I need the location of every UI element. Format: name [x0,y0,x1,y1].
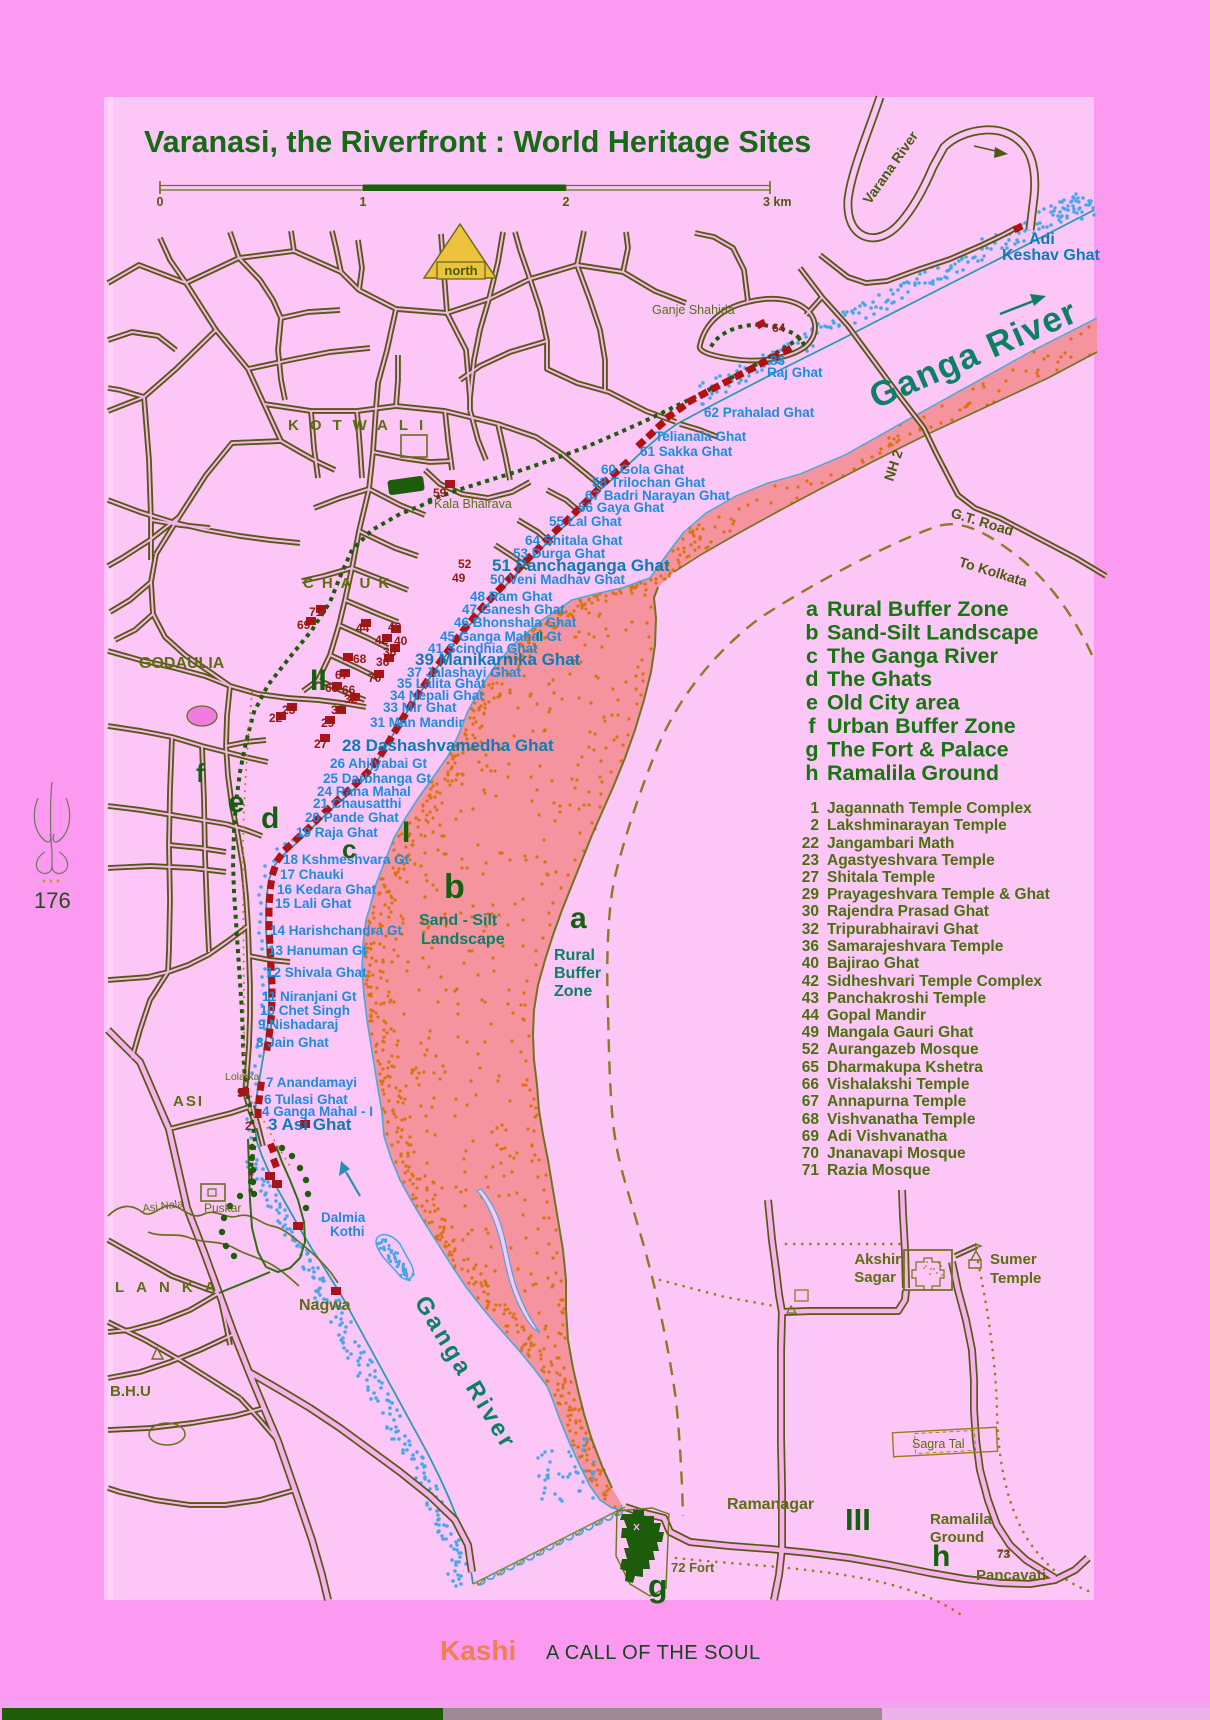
svg-text:32: 32 [802,921,819,938]
svg-text:Sagar: Sagar [854,1269,896,1286]
svg-text:north: north [444,263,477,278]
svg-text:The Ghats: The Ghats [827,667,932,691]
svg-text:69: 69 [802,1128,820,1145]
svg-text:68: 68 [802,1111,820,1128]
svg-text:70: 70 [802,1145,819,1162]
svg-text:36: 36 [376,655,390,669]
svg-text:Mangala Gauri Ghat: Mangala Gauri Ghat [827,1024,973,1041]
svg-text:Vishalakshi Temple: Vishalakshi Temple [827,1076,970,1093]
svg-text:Keshav Ghat: Keshav Ghat [1002,247,1100,264]
svg-text:Varanasi, the Riverfront : Wor: Varanasi, the Riverfront : World Heritag… [144,125,811,159]
svg-text:CHAUK: CHAUK [303,575,397,592]
svg-text:19 Raja Ghat: 19 Raja Ghat [296,825,378,840]
svg-text:64: 64 [772,321,786,335]
svg-text:II: II [310,664,327,697]
svg-text:46 Bhonshala Ghat: 46 Bhonshala Ghat [454,615,577,630]
svg-text:c: c [806,644,818,668]
svg-text:Adi: Adi [1029,231,1055,248]
svg-text:2: 2 [563,195,570,209]
svg-text:65: 65 [325,681,339,695]
svg-text:36: 36 [802,938,820,955]
svg-text:Akshir: Akshir [854,1251,901,1268]
svg-text:31 Man Mandir: 31 Man Mandir [370,715,465,730]
svg-text:22: 22 [269,711,283,725]
svg-text:23: 23 [282,703,296,717]
svg-text:The Ganga River: The Ganga River [827,644,998,668]
svg-text:52: 52 [458,557,472,571]
svg-text:Pancavati: Pancavati [976,1567,1046,1584]
svg-text:83: 83 [770,353,786,368]
svg-text:44: 44 [356,621,370,635]
svg-text:10 Chet Singh: 10 Chet Singh [260,1003,350,1018]
svg-text:67: 67 [335,668,349,682]
svg-text:GODAULIA: GODAULIA [139,655,225,672]
svg-text:33 Mir Ghat: 33 Mir Ghat [383,700,457,715]
svg-text:9 Nishadaraj: 9 Nishadaraj [258,1017,338,1032]
svg-text:Buffer: Buffer [554,965,601,982]
svg-text:27: 27 [802,869,819,886]
svg-text:0: 0 [157,195,164,209]
svg-text:Gopal Mandir: Gopal Mandir [827,1007,926,1024]
svg-text:72 Fort: 72 Fort [671,1560,715,1575]
svg-text:Kala Bhairava: Kala Bhairava [434,497,512,511]
svg-text:h: h [932,1540,950,1573]
svg-text:12 Shivala Ghat: 12 Shivala Ghat [266,965,367,980]
svg-text:LANKA: LANKA [115,1279,228,1296]
svg-text:30: 30 [331,703,345,717]
svg-text:Jnanavapi Mosque: Jnanavapi Mosque [827,1145,966,1162]
svg-text:62 Prahalad Ghat: 62 Prahalad Ghat [704,405,815,420]
svg-text:KOTWALI: KOTWALI [288,417,434,434]
svg-text:Kashi: Kashi [440,1635,516,1666]
svg-text:55 Lal Ghat: 55 Lal Ghat [549,514,622,529]
svg-text:27: 27 [314,737,328,751]
svg-text:Old City area: Old City area [827,691,961,715]
svg-text:40: 40 [802,955,819,972]
svg-text:Dharmakupa Kshetra: Dharmakupa Kshetra [827,1059,983,1076]
svg-text:Annapurna Temple: Annapurna Temple [827,1093,967,1110]
svg-text:32: 32 [344,692,358,706]
svg-text:Sand - Silt: Sand - Silt [419,912,498,929]
svg-text:Sumer: Sumer [990,1251,1037,1268]
svg-text:67: 67 [802,1093,819,1110]
svg-text:b: b [444,868,465,906]
svg-text:69: 69 [297,618,311,632]
svg-text:Samarajeshvara Temple: Samarajeshvara Temple [827,938,1004,955]
svg-text:71: 71 [802,1162,820,1179]
svg-text:Nagwa: Nagwa [299,1297,351,1314]
svg-text:29: 29 [802,886,820,903]
svg-text:44: 44 [802,1007,820,1024]
svg-text:43: 43 [802,990,820,1007]
svg-text:Ramanagar: Ramanagar [727,1496,814,1513]
svg-text:30: 30 [802,903,819,920]
svg-text:13 Hanuman Gt: 13 Hanuman Gt [268,943,368,958]
svg-text:g: g [805,737,818,761]
svg-text:b: b [805,620,818,644]
svg-text:Sagra Tal: Sagra Tal [912,1437,965,1451]
svg-text:g: g [648,1568,668,1604]
svg-text:22: 22 [802,835,819,852]
svg-text:Sand-Silt Landscape: Sand-Silt Landscape [827,620,1039,644]
svg-text:1: 1 [810,800,819,817]
svg-text:17 Chauki: 17 Chauki [280,867,344,882]
svg-text:Sidheshvari Temple Complex: Sidheshvari Temple Complex [827,973,1042,990]
svg-text:Ganje Shahida: Ganje Shahida [652,303,735,317]
svg-text:h: h [805,761,818,785]
svg-text:2: 2 [810,817,819,834]
svg-text:8 Jain Ghat: 8 Jain Ghat [256,1035,329,1050]
svg-text:e: e [806,691,818,715]
svg-text:71: 71 [309,605,323,619]
svg-text:Landscape: Landscape [421,931,505,948]
svg-text:Temple: Temple [990,1270,1041,1287]
svg-text:1: 1 [248,1169,255,1183]
svg-text:ASI: ASI [173,1093,204,1110]
svg-text:1: 1 [360,195,367,209]
svg-text:III: III [845,1502,871,1537]
svg-text:Agastyeshvara Temple: Agastyeshvara Temple [827,852,995,869]
svg-text:Zone: Zone [554,983,592,1000]
svg-text:Rural: Rural [554,947,595,964]
svg-text:14 Harishchandra Gt: 14 Harishchandra Gt [270,923,403,938]
svg-text:e: e [228,786,245,819]
svg-text:Telianala Ghat: Telianala Ghat [655,429,747,444]
svg-text:I: I [402,816,410,849]
svg-text:Razia Mosque: Razia Mosque [827,1162,931,1179]
svg-text:43: 43 [388,620,402,634]
svg-text:28 Dashashvamedha Ghat: 28 Dashashvamedha Ghat [342,736,554,755]
svg-text:Rajendra Prasad Ghat: Rajendra Prasad Ghat [827,903,989,920]
svg-text:65: 65 [802,1059,820,1076]
svg-text:d: d [261,802,279,835]
svg-text:16 Kedara Ghat: 16 Kedara Ghat [277,882,377,897]
svg-text:3 km: 3 km [763,195,792,209]
svg-text:61 Sakka Ghat: 61 Sakka Ghat [640,444,733,459]
svg-text:66: 66 [802,1076,820,1093]
svg-text:c: c [342,834,356,864]
svg-text:Kothi: Kothi [330,1224,365,1239]
svg-text:73: 73 [997,1549,1009,1561]
svg-text:a: a [570,902,587,935]
svg-text:50 Veni Madhav Ghat: 50 Veni Madhav Ghat [490,572,626,587]
svg-text:23: 23 [802,852,820,869]
svg-text:II: II [536,629,543,644]
svg-text:15 Lali Ghat: 15 Lali Ghat [275,896,352,911]
svg-text:Rural Buffer Zone: Rural Buffer Zone [827,597,1009,621]
svg-text:B.H.U: B.H.U [110,1383,151,1400]
svg-text:5: 5 [237,1086,244,1100]
svg-text:Urban Buffer Zone: Urban Buffer Zone [827,714,1016,738]
svg-text:Bajirao Ghat: Bajirao Ghat [827,955,919,972]
svg-text:Panchakroshi Temple: Panchakroshi Temple [827,990,986,1007]
svg-text:11 Niranjani Gt: 11 Niranjani Gt [262,989,357,1004]
svg-text:70: 70 [368,671,382,685]
svg-text:29: 29 [321,716,335,730]
svg-text:49: 49 [802,1024,820,1041]
svg-text:3 Asi Ghat: 3 Asi Ghat [268,1115,352,1134]
svg-text:2: 2 [245,1119,252,1133]
svg-text:Ramalila Ground: Ramalila Ground [827,761,999,785]
svg-text:56 Gaya Ghat: 56 Gaya Ghat [578,500,665,515]
svg-text:A CALL OF THE SOUL: A CALL OF THE SOUL [546,1642,761,1664]
svg-text:a: a [806,597,819,621]
svg-text:Lakshminarayan Temple: Lakshminarayan Temple [827,817,1007,834]
svg-text:Ramalila: Ramalila [930,1511,992,1528]
svg-text:d: d [805,667,818,691]
svg-text:Dalmia: Dalmia [321,1210,366,1225]
svg-text:Aurangazeb Mosque: Aurangazeb Mosque [827,1041,979,1058]
svg-text:7 Anandamayi: 7 Anandamayi [266,1075,357,1090]
svg-text:f: f [808,714,816,738]
svg-text:The Fort & Palace: The Fort & Palace [827,737,1009,761]
svg-text:Puskar: Puskar [204,1201,241,1215]
svg-text:Jangambari Math: Jangambari Math [827,835,954,852]
svg-text:Prayageshvara Temple & Ghat: Prayageshvara Temple & Ghat [827,886,1050,903]
svg-text:Jagannath Temple Complex: Jagannath Temple Complex [827,800,1032,817]
svg-text:f: f [196,758,205,788]
svg-text:Shitala Temple: Shitala Temple [827,869,936,886]
svg-text:Tripurabhairavi Ghat: Tripurabhairavi Ghat [827,921,979,938]
svg-text:42: 42 [802,973,819,990]
svg-text:Vishvanatha Temple: Vishvanatha Temple [827,1111,976,1128]
svg-text:20 Pande Ghat: 20 Pande Ghat [305,810,399,825]
svg-text:26 Ahilyabai Gt: 26 Ahilyabai Gt [330,756,428,771]
svg-text:49: 49 [452,571,466,585]
svg-text:52: 52 [802,1041,819,1058]
svg-text:68: 68 [353,652,367,666]
svg-text:Lolarka: Lolarka [225,1071,260,1083]
svg-text:Adi Vishvanatha: Adi Vishvanatha [827,1128,948,1145]
svg-text:176: 176 [34,888,71,913]
svg-text:21 Chausatthi: 21 Chausatthi [313,796,402,811]
